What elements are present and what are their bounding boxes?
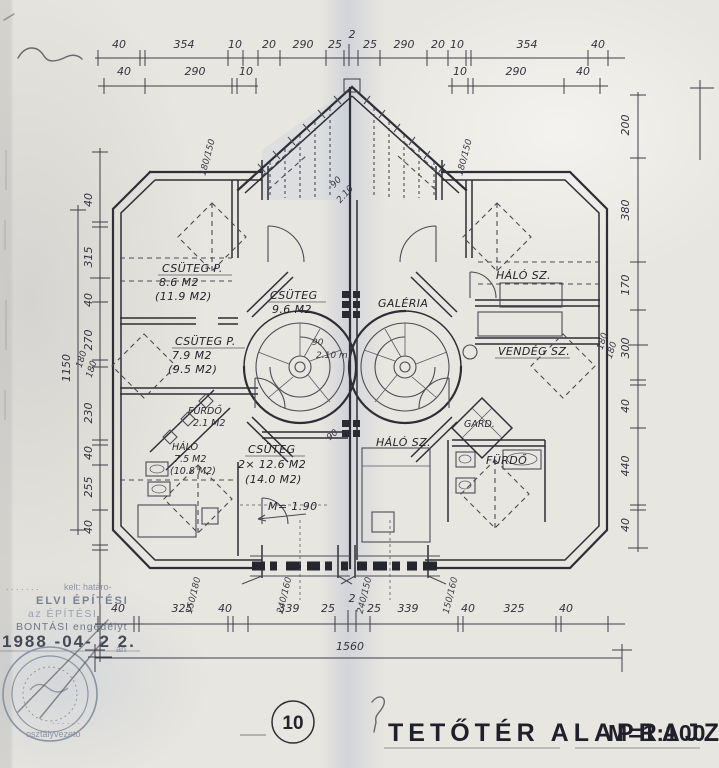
room-name: FÜRDŐ <box>188 406 222 417</box>
window-size-label: 150/180 <box>185 576 204 615</box>
stamp-signer: osztályvezető <box>26 729 81 739</box>
room-area: 2.1 M2 <box>193 418 225 429</box>
approval-stamp: . . . . . . . kelt: határo- ELVI ÉPÍTÉSI… <box>0 582 140 741</box>
dim-label: 40 <box>82 446 95 460</box>
window-size-label: 150/160 <box>442 576 461 615</box>
dim-label: 40 <box>82 193 95 207</box>
room-name: GARD. <box>464 419 495 430</box>
dim-label: 40 <box>461 602 475 615</box>
dim-label: 380 <box>619 200 632 221</box>
dim-label: 230 <box>82 403 95 424</box>
terraces <box>242 520 446 600</box>
dim-label: 354 <box>517 38 538 51</box>
dim-label: 40 <box>576 65 590 78</box>
dim-label: 180 <box>85 359 100 379</box>
dim-label: 290 <box>394 38 415 51</box>
dim-label: 2 <box>349 592 356 605</box>
room-name: CSÜTEG P. <box>162 262 223 275</box>
stamp-dots: . . . . . . <box>52 716 80 726</box>
dim-label: 25 <box>363 38 377 51</box>
dim-label: 40 <box>112 38 126 51</box>
dim-label: 2 <box>349 28 356 41</box>
dim-label: 25 <box>328 38 342 51</box>
room-name: HÁLÓ SZ. <box>496 269 551 282</box>
dim-label: 339 <box>398 602 419 615</box>
door-size-label: 2.10 m <box>316 351 348 361</box>
scanned-blueprint-page: 40 354 10 20 290 25 2 25 290 20 10 354 4… <box>0 0 719 768</box>
stamp-kelt: kelt: határo- <box>64 582 112 592</box>
dim-label: 1150 <box>60 354 73 382</box>
dim-label: 325 <box>504 602 525 615</box>
dim-label: 200 <box>619 115 632 136</box>
spiral-stair-right <box>349 311 461 423</box>
right-dimension-column: 200 380 170 300 40 440 40 180 180 <box>596 92 648 552</box>
dim-label: 40 <box>117 65 131 78</box>
dim-label: 40 <box>82 520 95 534</box>
room-name: VENDÉG SZ. <box>498 345 570 358</box>
room-name: GALÉRIA <box>378 297 428 310</box>
dim-label: 1560 <box>336 640 364 653</box>
dim-label: 440 <box>619 456 632 477</box>
room-area: 7.5 M2 <box>174 454 206 465</box>
dim-label: 290 <box>185 65 206 78</box>
dim-label: 20 <box>262 38 276 51</box>
dim-label: 315 <box>82 247 95 268</box>
dim-label: 10 <box>450 38 464 51</box>
dim-label: 40 <box>559 602 573 615</box>
title-block: 10 TETŐTÉR ALAPRAJZ M=1:100 <box>240 697 719 748</box>
dim-label: 290 <box>293 38 314 51</box>
room-area: (10.8 M2) <box>170 466 216 477</box>
dim-label: 40 <box>218 602 232 615</box>
room-area: 8.6 M2 <box>159 276 199 289</box>
dim-label: 170 <box>619 275 632 296</box>
room-labels: CSÜTEG P. 8.6 M2 (11.9 M2) CSÜTEG 9.6 M2… <box>155 262 570 486</box>
room-area: (9.5 M2) <box>168 363 217 376</box>
dim-label: 40 <box>619 399 632 413</box>
top-dimension-row-1: 40 354 10 20 290 25 2 25 290 20 10 354 4… <box>95 28 625 66</box>
room-area: 9.6 M2 <box>272 303 312 316</box>
dim-label: 25 <box>367 602 381 615</box>
dim-label: 40 <box>619 518 632 532</box>
dim-label: 10 <box>453 65 467 78</box>
spiral-stair-left <box>244 311 356 423</box>
dim-label: 270 <box>82 330 95 351</box>
dim-label: 300 <box>619 338 632 359</box>
stamp-line: az ÉPÍTÉSI <box>28 607 97 620</box>
interior-walls-right <box>362 180 600 542</box>
dim-label: 40 <box>591 38 605 51</box>
room-name: HÁLÓ <box>172 441 199 453</box>
door-size-label: 90 <box>325 428 340 443</box>
room-area: 2× 12.6 M2 <box>238 458 306 471</box>
dim-label: 354 <box>174 38 195 51</box>
dim-label: 10 <box>228 38 242 51</box>
room-name: CSÜTEG P. <box>175 335 236 348</box>
floor-plan-drawing: 40 354 10 20 290 25 2 25 290 20 10 354 4… <box>0 0 719 768</box>
room-name: FÜRDŐ <box>486 453 527 467</box>
sheet-number: 10 <box>282 713 303 734</box>
stamp-date-suffix: án <box>116 644 126 654</box>
dim-label: 255 <box>82 477 95 498</box>
dim-label: 10 <box>239 65 253 78</box>
room-name: HÁLÓ SZ. <box>376 436 431 449</box>
headroom-note: M= 1.90 <box>268 500 318 513</box>
dim-label: 20 <box>431 38 445 51</box>
dim-label: 40 <box>82 293 95 307</box>
room-area: (14.0 M2) <box>245 473 302 486</box>
room-name: CSÜTEG <box>270 289 318 302</box>
drawing-scale: M=1:100 <box>608 720 706 746</box>
door-size-label: 90 <box>312 338 324 348</box>
stamp-line: ELVI ÉPÍTÉSI <box>36 594 129 607</box>
stamp-dots: . . . . . . . <box>6 582 39 592</box>
room-name: CSÜTEG <box>248 443 296 456</box>
bottom-dimension-row: 40 325 40 339 25 2 25 339 40 325 40 1560… <box>85 576 632 672</box>
room-area: 7.9 M2 <box>172 349 212 362</box>
dim-label: 290 <box>506 65 527 78</box>
room-area: (11.9 M2) <box>155 290 212 303</box>
dim-label: 25 <box>321 602 335 615</box>
